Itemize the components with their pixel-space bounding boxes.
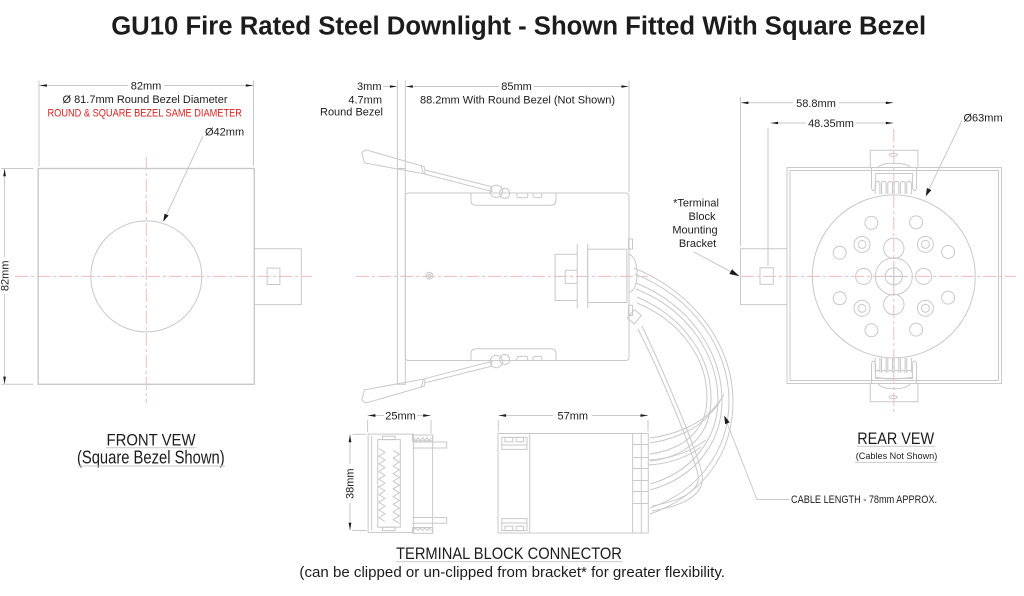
svg-text:Round Bezel: Round Bezel: [320, 106, 383, 118]
svg-text:Mounting: Mounting: [672, 225, 717, 237]
svg-text:*Terminal: *Terminal: [673, 198, 719, 210]
svg-text:Ø 81.7mm Round Bezel Diameter: Ø 81.7mm Round Bezel Diameter: [62, 94, 227, 106]
svg-text:(Cables Not Shown): (Cables Not Shown): [856, 451, 938, 462]
svg-text:48.35mm: 48.35mm: [808, 118, 854, 130]
svg-text:57mm: 57mm: [558, 411, 589, 423]
svg-text:(can be clipped or un-clipped: (can be clipped or un-clipped from brack…: [299, 565, 725, 581]
svg-text:Block: Block: [689, 211, 716, 223]
svg-text:82mm: 82mm: [0, 261, 11, 292]
svg-text:4.7mm: 4.7mm: [348, 95, 382, 107]
svg-text:3mm: 3mm: [357, 81, 381, 93]
svg-text:GU10 Fire Rated Steel Downligh: GU10 Fire Rated Steel Downlight - Shown …: [111, 11, 926, 41]
svg-text:Bracket: Bracket: [679, 238, 716, 250]
svg-text:CABLE LENGTH - 78mm APPROX.: CABLE LENGTH - 78mm APPROX.: [791, 494, 937, 506]
svg-text:85mm: 85mm: [501, 81, 532, 93]
svg-text:(Square Bezel Shown): (Square Bezel Shown): [77, 447, 225, 467]
svg-text:ROUND & SQUARE BEZEL SAME DIAM: ROUND & SQUARE BEZEL SAME DIAMETER: [48, 108, 242, 120]
svg-text:Ø42mm: Ø42mm: [205, 127, 244, 139]
svg-text:88.2mm With Round Bezel (Not S: 88.2mm With Round Bezel (Not Shown): [420, 95, 615, 107]
svg-text:Ø63mm: Ø63mm: [964, 113, 1003, 125]
svg-text:82mm: 82mm: [131, 81, 162, 93]
svg-text:REAR VEW: REAR VEW: [857, 430, 934, 448]
svg-text:58.8mm: 58.8mm: [796, 98, 836, 110]
svg-text:38mm: 38mm: [344, 468, 356, 499]
svg-text:TERMINAL BLOCK CONNECTOR: TERMINAL BLOCK CONNECTOR: [396, 544, 622, 563]
svg-text:25mm: 25mm: [385, 411, 416, 423]
